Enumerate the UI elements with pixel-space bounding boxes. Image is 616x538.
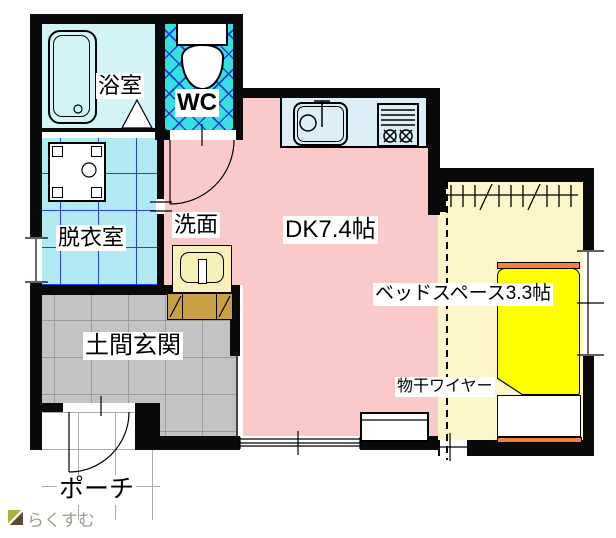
opening-glyph-dressing: [150, 202, 172, 211]
kitchen-faucet-icon: [300, 101, 330, 131]
opening-glyph-bedspace: [440, 433, 467, 461]
bath-door-triangle-icon: [122, 100, 152, 128]
washing-machine-drum-icon: [82, 163, 96, 177]
label-washbasin: 洗面: [172, 212, 220, 238]
label-laundry-wire: 物干ワイヤー: [395, 377, 495, 397]
label-wc: WC: [175, 89, 219, 117]
window-glyph-east: [577, 251, 604, 355]
shoe-cabinet-diagonals: [170, 296, 230, 317]
bed-corner-fold-line: [497, 378, 523, 395]
floor-plan: 浴室 WC 脱衣室 洗面 DK7.4帖 ベッドスペース3.3帖 物干ワイヤー 土…: [0, 0, 616, 538]
rakusumu-logo-icon: [8, 510, 23, 525]
window-glyph-left: [25, 238, 48, 282]
bathtub-drain-icon: [74, 105, 82, 113]
label-bedspace: ベッドスペース3.3帖: [373, 283, 553, 306]
entrance-door-arc-icon: [69, 396, 129, 472]
linework-overlay: [0, 0, 616, 538]
label-entrance-doma: 土間玄関: [83, 332, 183, 360]
label-porch: ポーチ: [57, 475, 136, 505]
window-glyph-south: [240, 431, 360, 455]
watermark-text: らくすむ: [27, 506, 95, 531]
stove-icon: [378, 104, 418, 146]
label-bathroom: 浴室: [96, 73, 144, 99]
wc-door-arc-icon: [170, 124, 234, 204]
label-dining-kitchen: DK7.4帖: [283, 216, 378, 244]
label-dressing: 脱衣室: [56, 225, 126, 251]
hanger-pipe-icon: [444, 184, 578, 210]
